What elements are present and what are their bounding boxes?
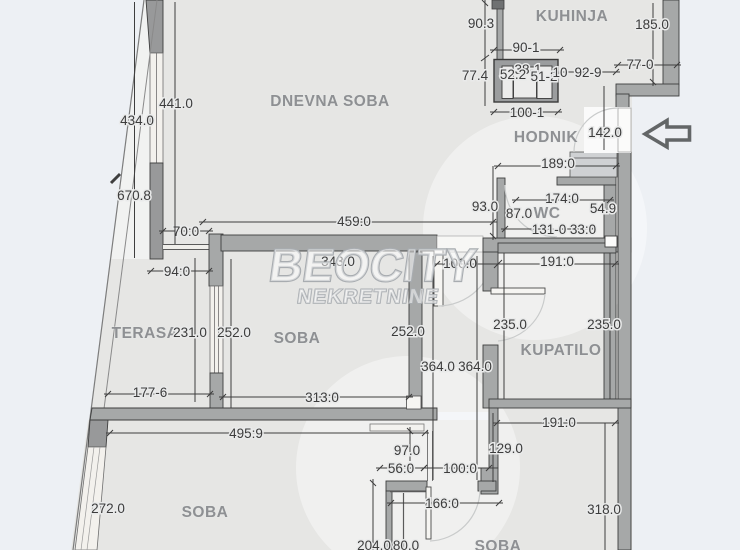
svg-text:SOBA: SOBA — [182, 504, 229, 521]
svg-text:BEOCITY: BEOCITY — [266, 239, 479, 291]
svg-text:70:0: 70:0 — [173, 224, 199, 239]
svg-text:204.0: 204.0 — [357, 538, 391, 550]
svg-text:SOBA: SOBA — [475, 538, 522, 550]
svg-text:90-1: 90-1 — [512, 40, 539, 55]
svg-text:93.0: 93.0 — [472, 199, 498, 214]
svg-text:52.2: 52.2 — [500, 67, 526, 82]
svg-text:364.0: 364.0 — [458, 359, 492, 374]
svg-text:166:0: 166:0 — [425, 496, 459, 511]
svg-text:191:0: 191:0 — [542, 415, 576, 430]
svg-text:189:0: 189:0 — [541, 156, 575, 171]
svg-text:TERASA: TERASA — [112, 325, 179, 342]
svg-text:HODNIK: HODNIK — [514, 129, 578, 146]
svg-text:KUHINJA: KUHINJA — [536, 8, 608, 25]
svg-text:235.0: 235.0 — [493, 317, 527, 332]
svg-text:131-0: 131-0 — [532, 222, 567, 237]
svg-text:10: 10 — [552, 65, 567, 80]
svg-text:WC: WC — [534, 205, 561, 222]
svg-text:129.0: 129.0 — [489, 441, 523, 456]
svg-text:235.0: 235.0 — [587, 317, 621, 332]
svg-text:80.0: 80.0 — [393, 538, 419, 550]
svg-text:DNEVNA SOBA: DNEVNA SOBA — [270, 93, 389, 110]
svg-text:272.0: 272.0 — [91, 501, 125, 516]
svg-text:174:0: 174:0 — [545, 191, 579, 206]
svg-text:90.3: 90.3 — [468, 16, 494, 31]
svg-text:231.0: 231.0 — [173, 325, 207, 340]
svg-text:92-9: 92-9 — [574, 65, 601, 80]
svg-text:NEKRETNINE: NEKRETNINE — [296, 286, 441, 308]
svg-text:318.0: 318.0 — [587, 502, 621, 517]
svg-text:191:0: 191:0 — [540, 254, 574, 269]
svg-text:313:0: 313:0 — [305, 390, 339, 405]
svg-text:87.0: 87.0 — [506, 206, 532, 221]
svg-text:KUPATILO: KUPATILO — [521, 342, 602, 359]
svg-text:252.0: 252.0 — [217, 325, 251, 340]
svg-text:56:0: 56:0 — [388, 461, 414, 476]
svg-text:177-6: 177-6 — [133, 385, 168, 400]
svg-text:434.0: 434.0 — [120, 113, 154, 128]
svg-text:100:0: 100:0 — [443, 461, 477, 476]
svg-text:252.0: 252.0 — [391, 324, 425, 339]
svg-text:441.0: 441.0 — [159, 96, 193, 111]
svg-text:33:0: 33:0 — [570, 222, 596, 237]
svg-text:100-1: 100-1 — [510, 105, 545, 120]
svg-text:77-0: 77-0 — [626, 57, 653, 72]
svg-text:SOBA: SOBA — [274, 330, 321, 347]
svg-text:364.0: 364.0 — [421, 359, 455, 374]
svg-text:185.0: 185.0 — [635, 17, 669, 32]
svg-text:670.8: 670.8 — [117, 188, 151, 203]
svg-text:459:0: 459:0 — [337, 214, 371, 229]
svg-text:77.4: 77.4 — [462, 68, 489, 83]
svg-text:142.0: 142.0 — [588, 125, 622, 140]
svg-text:94:0: 94:0 — [164, 264, 190, 279]
svg-text:97.0: 97.0 — [394, 443, 420, 458]
svg-text:495:9: 495:9 — [229, 426, 263, 441]
svg-text:54.9: 54.9 — [590, 201, 616, 216]
